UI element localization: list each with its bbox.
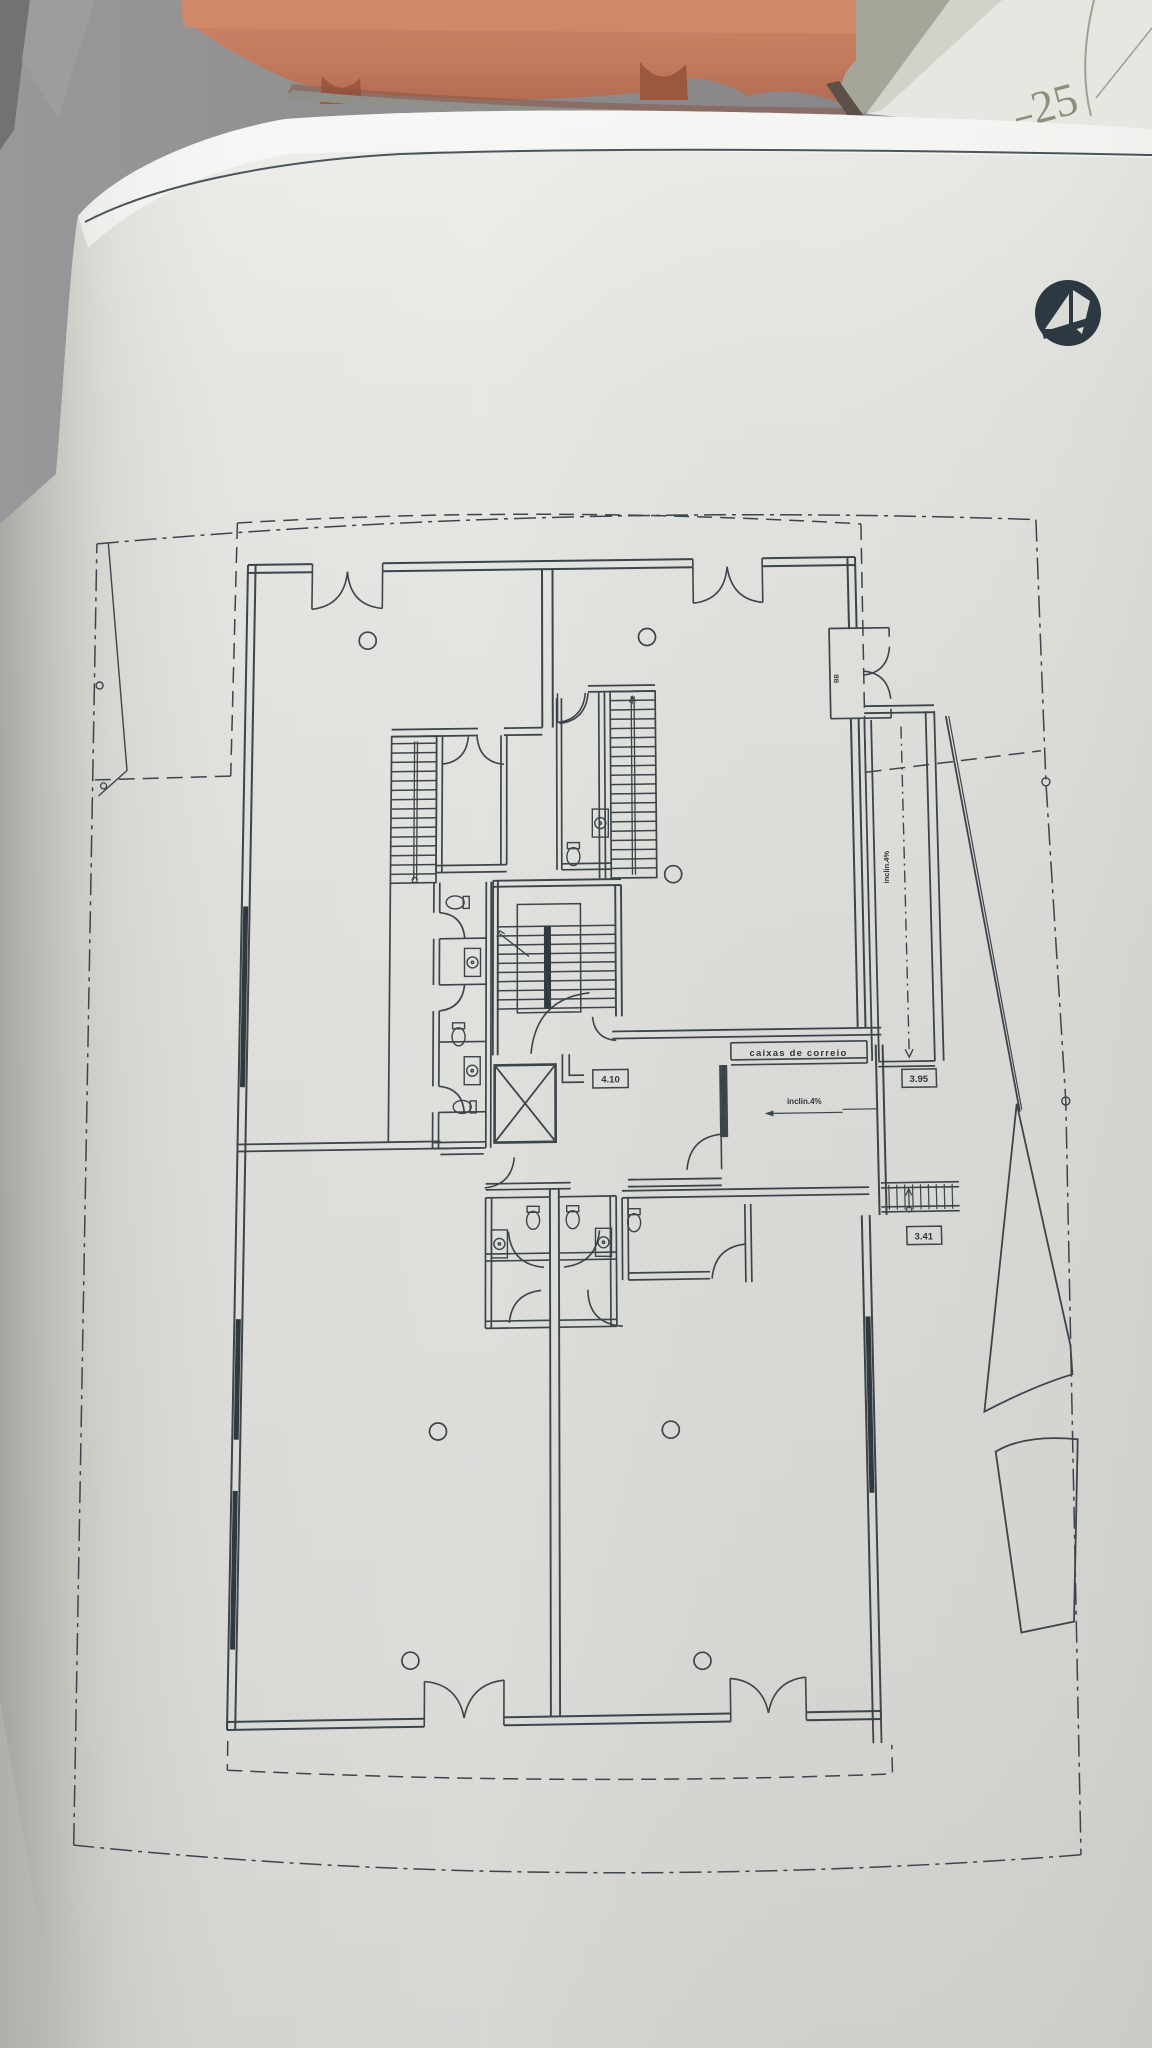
svg-text:BB: BB	[835, 674, 841, 683]
svg-text:inclin.4%: inclin.4%	[882, 851, 891, 884]
svg-text:inclin.4%: inclin.4%	[787, 1097, 822, 1106]
svg-text:3.95: 3.95	[910, 1074, 929, 1085]
svg-text:3.41: 3.41	[915, 1231, 934, 1242]
svg-text:4.10: 4.10	[601, 1075, 620, 1086]
svg-text:caixas de correio: caixas de correio	[749, 1048, 847, 1059]
